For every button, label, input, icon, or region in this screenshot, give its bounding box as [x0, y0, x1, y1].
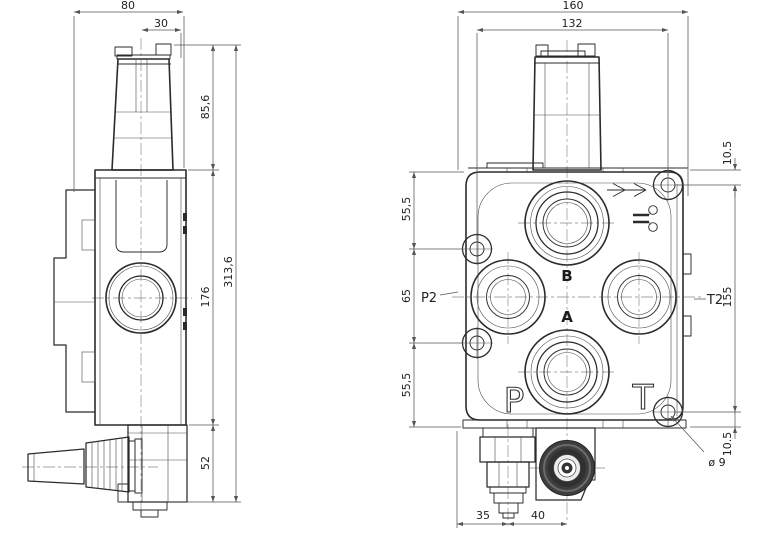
spool-symbol-icon — [633, 206, 657, 232]
side-view-lever — [28, 437, 142, 493]
flow-arrow-icon — [607, 184, 646, 197]
drawing-sheet: B A P T P2 T2 — [0, 0, 768, 535]
side-view-body — [54, 170, 187, 425]
port-label-p: P — [504, 381, 525, 421]
port-callout-p2: P2 — [421, 291, 458, 306]
dim-front-hole-span-width: 132 — [562, 17, 583, 30]
port-callout-t2: T2 — [694, 293, 723, 308]
tank-plug-knob — [540, 441, 595, 496]
dim-front-left-upper: 55,5 — [400, 197, 413, 222]
dim-side-body-height: 176 — [199, 287, 212, 308]
front-view-body — [463, 163, 691, 428]
port-callout-p2-label: P2 — [421, 291, 437, 306]
lever-rod — [28, 449, 84, 484]
dim-side-total-width: 80 — [121, 0, 135, 12]
side-view-lower-block — [118, 425, 187, 517]
dim-front-bottom-right: 40 — [531, 509, 545, 522]
valve-technical-drawing: B A P T P2 T2 — [0, 0, 768, 535]
relief-valve-screw — [480, 428, 535, 518]
dim-front-total-width: 160 — [563, 0, 584, 12]
side-view-centerlines — [22, 38, 192, 516]
dim-front-bottom-offset: 10.5 — [721, 432, 734, 457]
dimensions: 80 30 85,6 176 52 313,6 160 132 55,5 65 … — [74, 0, 741, 528]
dim-front-top-offset: 10.5 — [721, 141, 734, 166]
port-label-t: T — [632, 378, 654, 418]
front-view: B A P T P2 T2 — [421, 40, 723, 529]
dim-side-total-height: 313,6 — [222, 256, 235, 288]
port-label-a: A — [561, 308, 573, 326]
dim-front-left-lower: 55,5 — [400, 373, 413, 398]
side-view — [22, 38, 192, 517]
leader-hole-diameter — [671, 416, 704, 452]
side-view-spool-cap — [112, 44, 173, 170]
dim-mount-hole-diameter: ø 9 — [708, 456, 725, 469]
dim-front-left-middle: 65 — [400, 289, 413, 303]
dim-side-lower-height: 52 — [199, 456, 212, 470]
port-label-b: B — [561, 267, 572, 285]
dim-front-bottom-left: 35 — [476, 509, 490, 522]
dim-front-hole-span-height: 155 — [721, 287, 734, 308]
dim-side-cap-height: 85,6 — [199, 95, 212, 120]
dim-side-spool-offset: 30 — [154, 17, 168, 30]
